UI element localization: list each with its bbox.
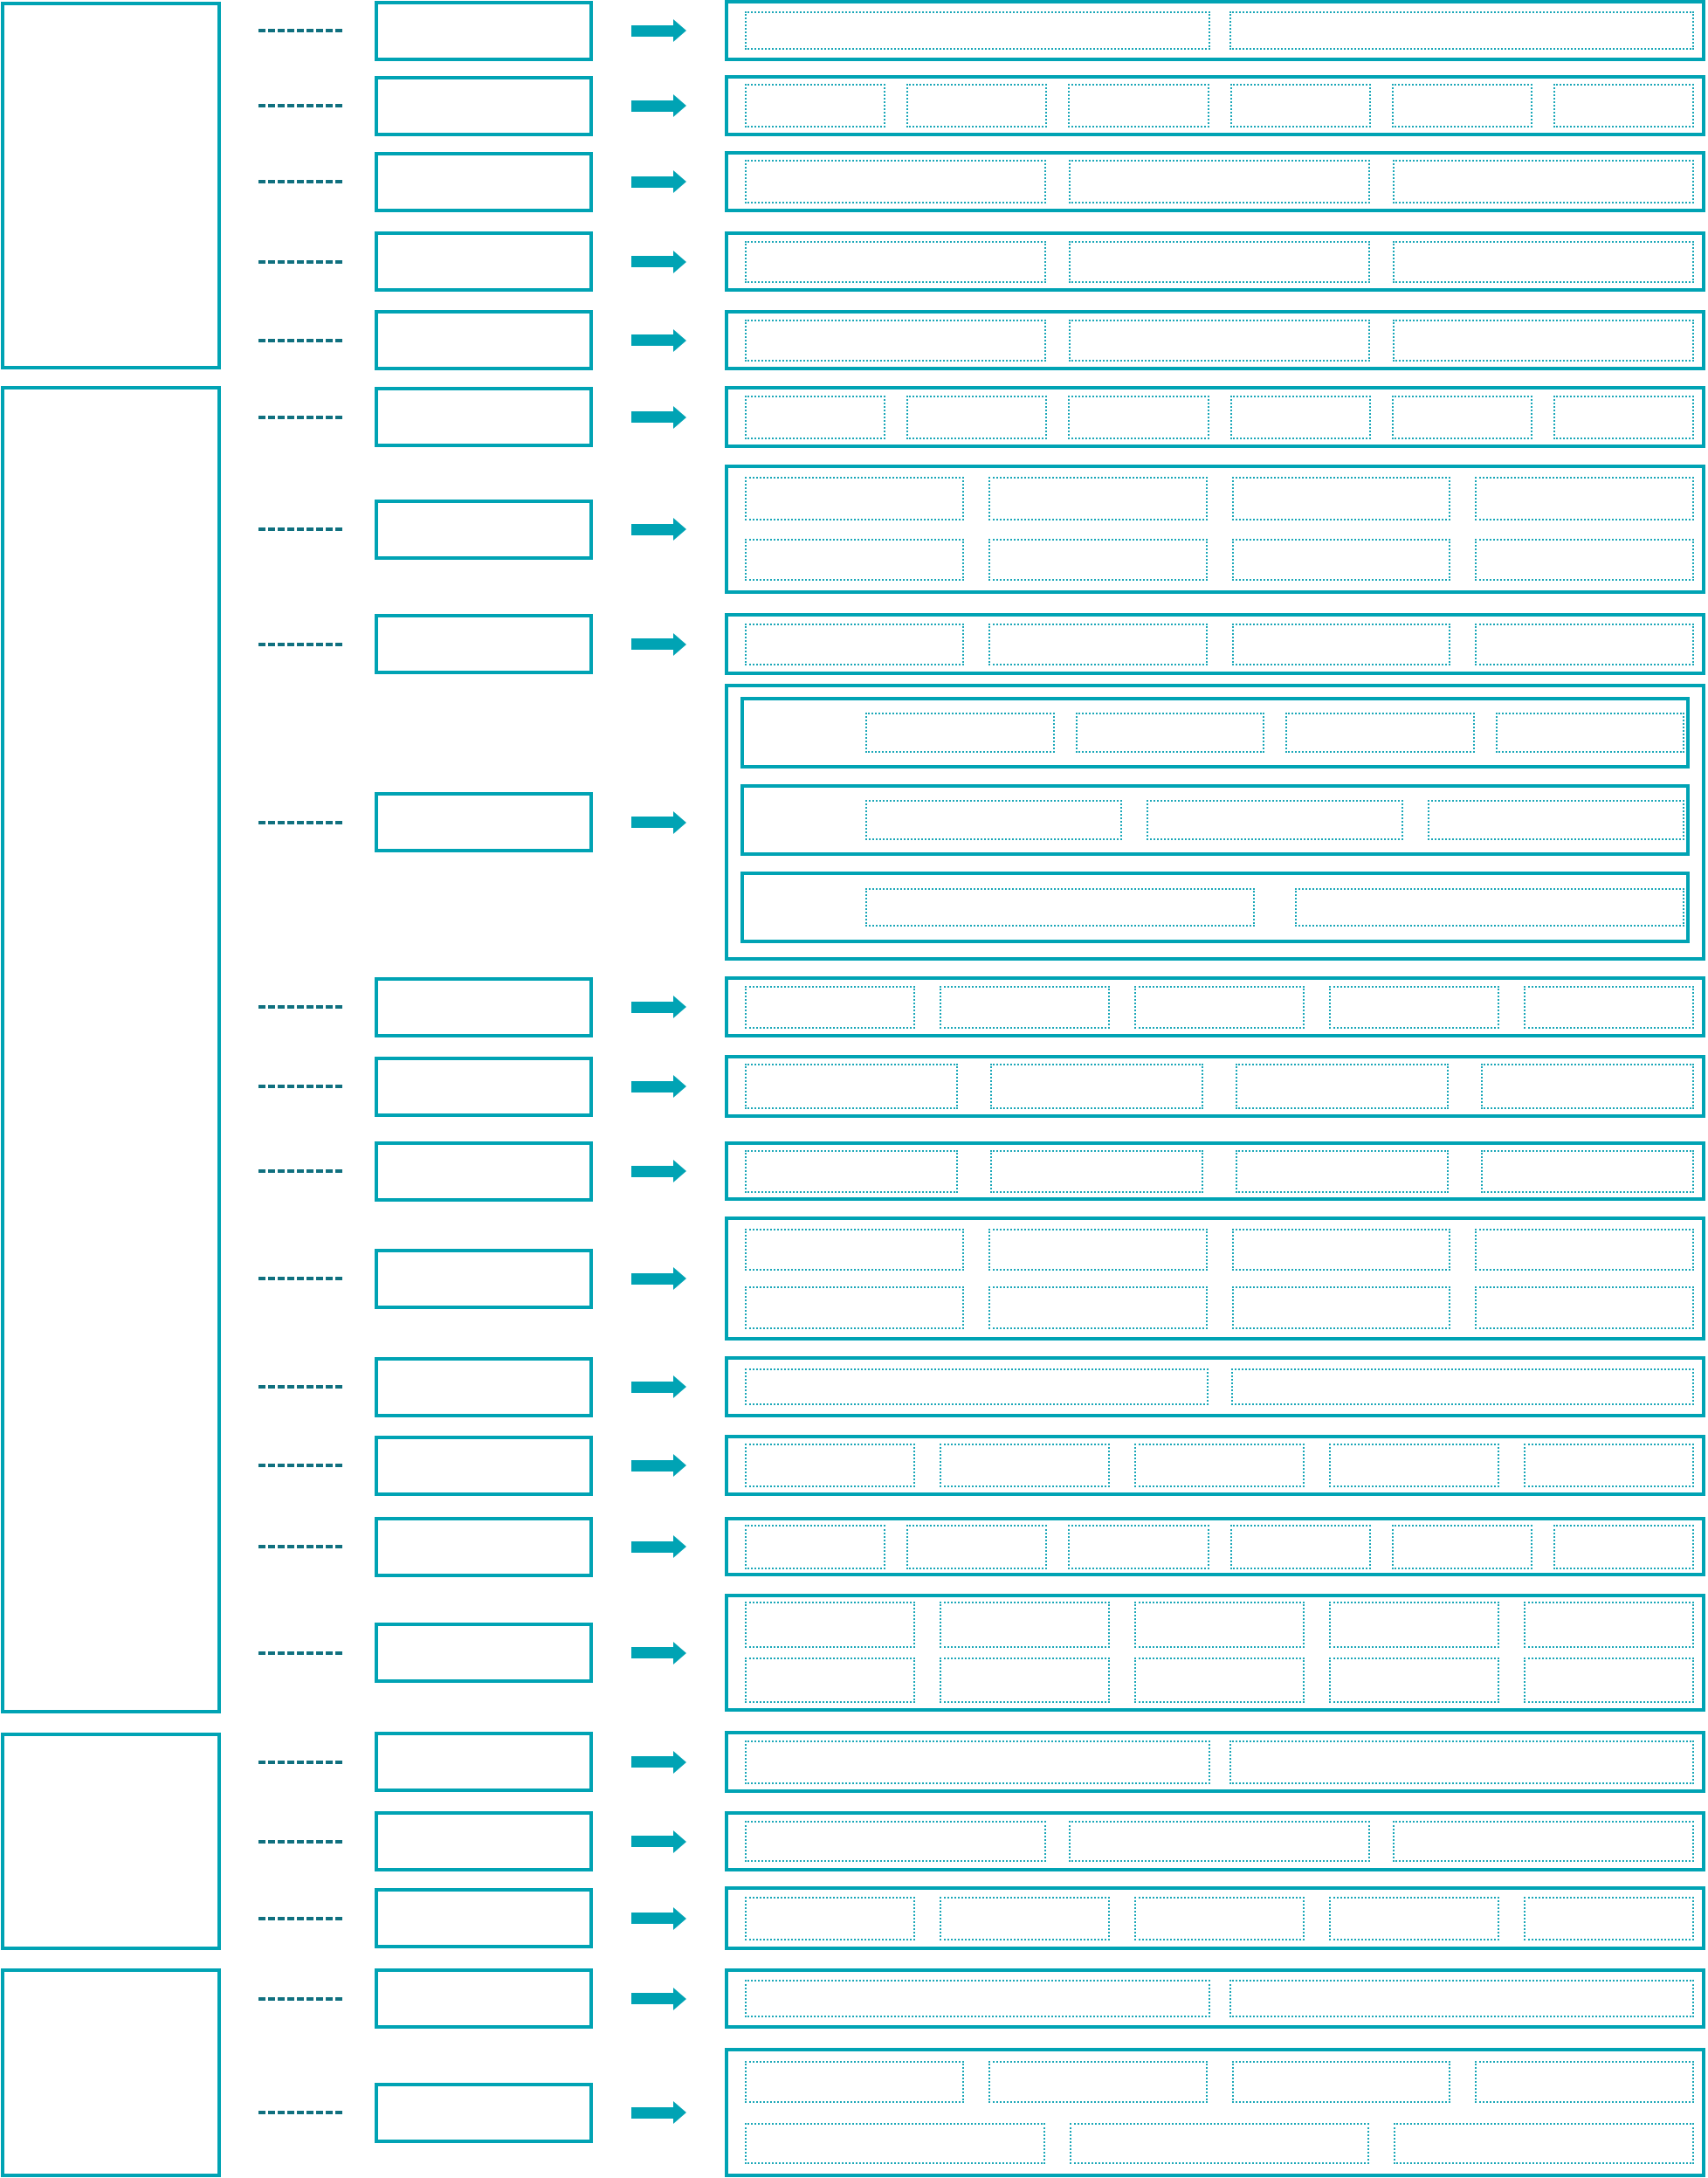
arrow-shaft bbox=[631, 2107, 673, 2119]
dash-segment bbox=[268, 339, 275, 342]
dash-segment bbox=[297, 416, 304, 419]
slot-line bbox=[728, 468, 1702, 529]
arrow-head bbox=[673, 633, 686, 656]
field-slot bbox=[1524, 986, 1694, 1029]
dash-segment bbox=[306, 1169, 313, 1173]
dash-segment bbox=[278, 1277, 285, 1280]
target-container-7 bbox=[725, 465, 1705, 594]
field-slot bbox=[745, 1821, 1046, 1862]
source-box-6 bbox=[375, 387, 593, 447]
arrow-shaft bbox=[631, 524, 673, 535]
flow-arrow-icon-13 bbox=[631, 1267, 686, 1291]
field-slot bbox=[1229, 11, 1695, 50]
dash-segment bbox=[258, 416, 265, 419]
arrow-head bbox=[673, 811, 686, 834]
flow-arrow-icon-2 bbox=[631, 94, 686, 118]
connector-dashes-14 bbox=[258, 1385, 342, 1389]
dash-segment bbox=[287, 1997, 294, 2001]
dash-segment bbox=[258, 1840, 265, 1844]
field-slot bbox=[745, 1525, 885, 1569]
arrow-shaft bbox=[631, 817, 673, 828]
field-slot bbox=[1329, 1897, 1499, 1940]
dash-segment bbox=[316, 1085, 323, 1088]
source-box-5 bbox=[375, 310, 593, 370]
arrow-shaft bbox=[631, 25, 673, 37]
dash-segment bbox=[297, 1005, 304, 1009]
field-slot bbox=[1553, 84, 1694, 128]
arrow-shaft bbox=[631, 1382, 673, 1393]
dash-segment bbox=[316, 416, 323, 419]
arrow-shaft bbox=[631, 1993, 673, 2004]
dash-segment bbox=[278, 527, 285, 531]
dash-segment bbox=[335, 339, 342, 342]
dash-segment bbox=[297, 1545, 304, 1548]
target-container-15 bbox=[725, 1435, 1705, 1496]
slot-line bbox=[728, 79, 1702, 133]
source-box-19 bbox=[375, 1811, 593, 1871]
dash-segment bbox=[316, 104, 323, 107]
slot-line bbox=[728, 1279, 1702, 1337]
nested-slot-line bbox=[744, 700, 1686, 765]
nested-group-box-1 bbox=[740, 697, 1690, 769]
target-container-13 bbox=[725, 1217, 1705, 1341]
slot-line bbox=[728, 314, 1702, 367]
field-slot bbox=[1496, 713, 1685, 753]
flow-arrow-icon-1 bbox=[631, 19, 686, 43]
arrow-shaft bbox=[631, 411, 673, 423]
field-slot bbox=[1229, 1740, 1695, 1784]
dash-segment bbox=[258, 1385, 265, 1389]
field-slot bbox=[1475, 624, 1694, 665]
connector-dashes-7 bbox=[258, 527, 342, 531]
dash-segment bbox=[278, 1169, 285, 1173]
field-slot bbox=[1475, 2061, 1694, 2103]
dash-segment bbox=[258, 1005, 265, 1009]
field-slot bbox=[745, 1444, 915, 1487]
connector-dashes-13 bbox=[258, 1277, 342, 1280]
dash-segment bbox=[306, 29, 313, 32]
field-slot bbox=[745, 1897, 915, 1940]
dash-segment bbox=[335, 416, 342, 419]
slot-line bbox=[728, 1972, 1702, 2025]
slot-line bbox=[728, 235, 1702, 288]
arrow-shaft bbox=[631, 1756, 673, 1768]
dash-segment bbox=[287, 180, 294, 183]
field-slot bbox=[1069, 160, 1370, 203]
slot-line bbox=[728, 1520, 1702, 1573]
dash-segment bbox=[297, 1277, 304, 1280]
flow-arrow-icon-10 bbox=[631, 996, 686, 1019]
slot-line bbox=[728, 1438, 1702, 1492]
field-slot bbox=[1231, 1368, 1695, 1405]
field-slot bbox=[745, 1286, 964, 1329]
target-container-14 bbox=[725, 1356, 1705, 1417]
field-slot bbox=[865, 888, 1255, 927]
dash-segment bbox=[326, 1917, 333, 1920]
source-box-15 bbox=[375, 1436, 593, 1496]
dash-segment bbox=[306, 821, 313, 824]
field-slot bbox=[1230, 1525, 1371, 1569]
dash-segment bbox=[297, 1385, 304, 1389]
field-slot bbox=[1134, 1602, 1305, 1648]
field-slot bbox=[940, 1658, 1110, 1703]
dash-segment bbox=[335, 1917, 342, 1920]
arrow-shaft bbox=[631, 1273, 673, 1285]
dash-segment bbox=[278, 260, 285, 264]
dash-segment bbox=[335, 1840, 342, 1844]
dash-segment bbox=[306, 527, 313, 531]
slot-line bbox=[728, 389, 1702, 445]
arrow-shaft bbox=[631, 176, 673, 188]
dash-segment bbox=[306, 180, 313, 183]
left-group-box-3 bbox=[1, 1733, 221, 1950]
arrow-shaft bbox=[631, 1836, 673, 1847]
flow-arrow-icon-3 bbox=[631, 170, 686, 194]
dash-segment bbox=[326, 104, 333, 107]
source-box-4 bbox=[375, 231, 593, 292]
arrow-shaft bbox=[631, 1647, 673, 1658]
dash-segment bbox=[287, 821, 294, 824]
arrow-head bbox=[673, 19, 686, 42]
field-slot bbox=[1236, 1150, 1449, 1193]
field-slot bbox=[1394, 2123, 1694, 2164]
dash-segment bbox=[316, 821, 323, 824]
target-container-8 bbox=[725, 613, 1705, 675]
slot-line bbox=[728, 1597, 1702, 1653]
connector-dashes-4 bbox=[258, 260, 342, 264]
field-slot bbox=[1329, 1602, 1499, 1648]
field-slot bbox=[940, 986, 1110, 1029]
slot-line bbox=[728, 2051, 1702, 2113]
source-box-1 bbox=[375, 1, 593, 61]
dash-segment bbox=[258, 1169, 265, 1173]
dash-segment bbox=[278, 1085, 285, 1088]
dash-segment bbox=[287, 1464, 294, 1467]
flow-arrow-icon-9 bbox=[631, 810, 686, 834]
connector-dashes-18 bbox=[258, 1761, 342, 1764]
arrow-shaft bbox=[631, 638, 673, 650]
field-slot bbox=[865, 800, 1122, 840]
dash-segment bbox=[268, 260, 275, 264]
field-slot bbox=[745, 241, 1046, 283]
dash-segment bbox=[316, 260, 323, 264]
flow-arrow-icon-12 bbox=[631, 1160, 686, 1183]
dash-segment bbox=[316, 29, 323, 32]
dash-segment bbox=[287, 339, 294, 342]
dash-segment bbox=[268, 29, 275, 32]
target-container-20 bbox=[725, 1886, 1705, 1950]
slot-line bbox=[728, 1890, 1702, 1947]
field-slot bbox=[1069, 241, 1370, 283]
field-slot bbox=[1481, 1064, 1694, 1109]
field-slot bbox=[745, 539, 964, 581]
connector-dashes-1 bbox=[258, 29, 342, 32]
field-slot bbox=[1285, 713, 1475, 753]
dash-segment bbox=[326, 1464, 333, 1467]
dash-segment bbox=[258, 29, 265, 32]
dash-segment bbox=[297, 1761, 304, 1764]
field-slot bbox=[1475, 477, 1694, 520]
dash-segment bbox=[278, 1464, 285, 1467]
field-slot bbox=[745, 2061, 964, 2103]
connector-dashes-11 bbox=[258, 1085, 342, 1088]
connector-dashes-6 bbox=[258, 416, 342, 419]
source-box-20 bbox=[375, 1888, 593, 1948]
field-slot bbox=[940, 1602, 1110, 1648]
field-slot bbox=[1393, 160, 1694, 203]
dash-segment bbox=[278, 643, 285, 646]
target-container-18 bbox=[725, 1731, 1705, 1793]
source-box-18 bbox=[375, 1732, 593, 1792]
arrow-head bbox=[673, 94, 686, 117]
field-slot bbox=[1134, 1897, 1305, 1940]
dash-segment bbox=[258, 1277, 265, 1280]
dash-segment bbox=[306, 1277, 313, 1280]
slot-line bbox=[728, 2113, 1702, 2174]
field-slot bbox=[865, 713, 1055, 753]
dash-segment bbox=[335, 527, 342, 531]
field-slot bbox=[1069, 1821, 1370, 1862]
arrow-head bbox=[673, 1642, 686, 1665]
source-box-9 bbox=[375, 792, 593, 852]
arrow-head bbox=[673, 1907, 686, 1930]
dash-segment bbox=[287, 527, 294, 531]
flow-arrow-icon-8 bbox=[631, 632, 686, 656]
dash-segment bbox=[287, 1085, 294, 1088]
target-container-6 bbox=[725, 386, 1705, 448]
arrow-head bbox=[673, 518, 686, 541]
dash-segment bbox=[287, 1761, 294, 1764]
field-slot bbox=[1329, 1444, 1499, 1487]
nested-slot-line bbox=[744, 875, 1686, 940]
dash-segment bbox=[326, 821, 333, 824]
dash-segment bbox=[268, 180, 275, 183]
dash-segment bbox=[335, 1169, 342, 1173]
field-slot bbox=[745, 84, 885, 128]
dash-segment bbox=[297, 821, 304, 824]
slot-line bbox=[728, 155, 1702, 209]
dash-segment bbox=[268, 1005, 275, 1009]
dash-segment bbox=[278, 339, 285, 342]
arrow-head bbox=[673, 1830, 686, 1853]
dash-segment bbox=[335, 1997, 342, 2001]
dash-segment bbox=[316, 339, 323, 342]
field-slot bbox=[988, 624, 1208, 665]
connector-dashes-9 bbox=[258, 821, 342, 824]
field-slot bbox=[988, 1229, 1208, 1271]
dash-segment bbox=[297, 1840, 304, 1844]
dash-segment bbox=[326, 1085, 333, 1088]
target-container-9 bbox=[725, 684, 1705, 961]
dash-segment bbox=[268, 1464, 275, 1467]
dash-segment bbox=[268, 1917, 275, 1920]
dash-segment bbox=[287, 1545, 294, 1548]
slot-line bbox=[728, 1220, 1702, 1279]
arrow-head bbox=[673, 170, 686, 193]
dash-segment bbox=[326, 527, 333, 531]
source-box-21 bbox=[375, 1968, 593, 2029]
dash-segment bbox=[306, 2111, 313, 2114]
slot-line bbox=[728, 617, 1702, 672]
dash-segment bbox=[316, 1464, 323, 1467]
field-slot bbox=[745, 160, 1046, 203]
arrow-head bbox=[673, 996, 686, 1018]
dash-segment bbox=[297, 339, 304, 342]
target-container-17 bbox=[725, 1594, 1705, 1712]
target-container-10 bbox=[725, 976, 1705, 1037]
dash-segment bbox=[268, 416, 275, 419]
arrow-head bbox=[673, 406, 686, 429]
dash-segment bbox=[258, 527, 265, 531]
connector-dashes-22 bbox=[258, 2111, 342, 2114]
dash-segment bbox=[268, 1169, 275, 1173]
source-box-11 bbox=[375, 1057, 593, 1117]
dash-segment bbox=[258, 1917, 265, 1920]
field-slot bbox=[1230, 84, 1371, 128]
arrow-head bbox=[673, 1988, 686, 2010]
field-slot bbox=[1475, 1229, 1694, 1271]
field-slot bbox=[1134, 986, 1305, 1029]
dash-segment bbox=[316, 527, 323, 531]
dash-segment bbox=[326, 1277, 333, 1280]
dash-segment bbox=[278, 821, 285, 824]
dash-segment bbox=[278, 104, 285, 107]
field-slot bbox=[988, 2061, 1208, 2103]
dash-segment bbox=[258, 260, 265, 264]
dash-segment bbox=[306, 416, 313, 419]
dash-segment bbox=[335, 1085, 342, 1088]
dash-segment bbox=[297, 1997, 304, 2001]
dash-segment bbox=[316, 1277, 323, 1280]
field-slot bbox=[1393, 320, 1694, 362]
left-group-box-1 bbox=[1, 2, 221, 369]
arrow-shaft bbox=[631, 1913, 673, 1924]
arrow-head bbox=[673, 1751, 686, 1774]
field-slot bbox=[1232, 2061, 1451, 2103]
flow-arrow-icon-19 bbox=[631, 1830, 686, 1853]
dash-segment bbox=[335, 1277, 342, 1280]
field-slot bbox=[745, 1229, 964, 1271]
dash-segment bbox=[258, 1464, 265, 1467]
field-slot bbox=[745, 2123, 1045, 2164]
dash-segment bbox=[278, 1385, 285, 1389]
dash-segment bbox=[335, 1761, 342, 1764]
dash-segment bbox=[258, 339, 265, 342]
dash-segment bbox=[306, 1005, 313, 1009]
dash-segment bbox=[268, 1761, 275, 1764]
dash-segment bbox=[268, 1545, 275, 1548]
dash-segment bbox=[258, 1651, 265, 1655]
dash-segment bbox=[278, 29, 285, 32]
field-slot bbox=[745, 396, 885, 439]
target-container-22 bbox=[725, 2048, 1705, 2177]
field-slot bbox=[745, 1658, 915, 1703]
dash-segment bbox=[306, 1761, 313, 1764]
connector-dashes-5 bbox=[258, 339, 342, 342]
field-slot bbox=[745, 1150, 958, 1193]
dash-segment bbox=[287, 1917, 294, 1920]
target-container-11 bbox=[725, 1055, 1705, 1118]
connector-dashes-2 bbox=[258, 104, 342, 107]
dash-segment bbox=[335, 104, 342, 107]
dash-segment bbox=[306, 260, 313, 264]
left-group-box-2 bbox=[1, 386, 221, 1713]
field-slot bbox=[940, 1444, 1110, 1487]
field-slot bbox=[1232, 1229, 1451, 1271]
dash-segment bbox=[335, 1651, 342, 1655]
field-slot bbox=[1232, 624, 1451, 665]
dash-segment bbox=[306, 339, 313, 342]
dash-segment bbox=[306, 1085, 313, 1088]
field-slot bbox=[940, 1897, 1110, 1940]
arrow-head bbox=[673, 1454, 686, 1477]
dash-segment bbox=[306, 1997, 313, 2001]
flow-arrow-icon-11 bbox=[631, 1075, 686, 1099]
dash-segment bbox=[297, 180, 304, 183]
dash-segment bbox=[326, 1997, 333, 2001]
dash-segment bbox=[335, 260, 342, 264]
dash-segment bbox=[326, 416, 333, 419]
slot-line bbox=[728, 1058, 1702, 1114]
dash-segment bbox=[258, 1545, 265, 1548]
nested-group-box-3 bbox=[740, 872, 1690, 943]
flow-arrow-icon-20 bbox=[631, 1906, 686, 1930]
connector-dashes-8 bbox=[258, 643, 342, 646]
field-slot bbox=[1475, 1286, 1694, 1329]
arrow-shaft bbox=[631, 1081, 673, 1092]
connector-dashes-12 bbox=[258, 1169, 342, 1173]
dash-segment bbox=[258, 821, 265, 824]
field-slot bbox=[745, 986, 915, 1029]
dash-segment bbox=[326, 1545, 333, 1548]
dash-segment bbox=[278, 2111, 285, 2114]
connector-dashes-15 bbox=[258, 1464, 342, 1467]
field-slot bbox=[1392, 396, 1532, 439]
dash-segment bbox=[297, 29, 304, 32]
flow-arrow-icon-22 bbox=[631, 2101, 686, 2125]
dash-segment bbox=[326, 1169, 333, 1173]
dash-segment bbox=[268, 821, 275, 824]
field-slot bbox=[1236, 1064, 1449, 1109]
dash-segment bbox=[326, 1385, 333, 1389]
dash-segment bbox=[297, 1651, 304, 1655]
source-box-17 bbox=[375, 1623, 593, 1683]
field-slot bbox=[1428, 800, 1684, 840]
field-slot bbox=[1068, 84, 1209, 128]
dash-segment bbox=[306, 1651, 313, 1655]
slot-line bbox=[728, 1815, 1702, 1868]
dash-segment bbox=[258, 180, 265, 183]
slot-line bbox=[728, 529, 1702, 590]
field-slot bbox=[1070, 2123, 1370, 2164]
flow-arrow-icon-21 bbox=[631, 1987, 686, 2010]
source-box-7 bbox=[375, 500, 593, 560]
field-slot bbox=[745, 1980, 1210, 2017]
dash-segment bbox=[268, 1085, 275, 1088]
field-slot bbox=[1076, 713, 1265, 753]
slot-line bbox=[728, 3, 1702, 58]
arrow-shaft bbox=[631, 1166, 673, 1177]
connector-dashes-21 bbox=[258, 1997, 342, 2001]
dash-segment bbox=[278, 1917, 285, 1920]
dash-segment bbox=[326, 180, 333, 183]
dash-segment bbox=[287, 2111, 294, 2114]
field-slot bbox=[1553, 1525, 1694, 1569]
dash-segment bbox=[316, 1385, 323, 1389]
arrow-shaft bbox=[631, 1460, 673, 1472]
dash-segment bbox=[335, 1005, 342, 1009]
dash-segment bbox=[297, 260, 304, 264]
